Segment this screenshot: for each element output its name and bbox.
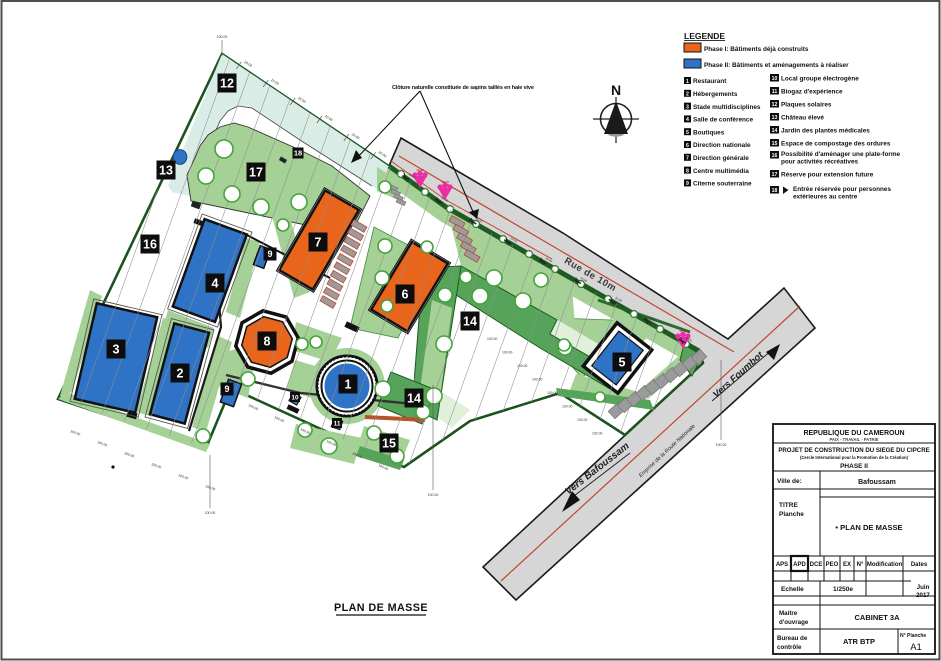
- svg-text:12: 12: [220, 77, 234, 91]
- svg-text:PEO: PEO: [826, 562, 839, 568]
- svg-text:Château élevé: Château élevé: [781, 114, 824, 121]
- svg-text:2017: 2017: [916, 592, 930, 599]
- svg-text:100.00: 100.00: [562, 405, 572, 409]
- svg-text:100.00: 100.00: [428, 493, 439, 497]
- svg-text:10.00: 10.00: [416, 168, 424, 172]
- svg-text:14: 14: [407, 392, 421, 406]
- svg-text:11: 11: [334, 420, 341, 427]
- svg-text:2: 2: [177, 367, 184, 381]
- svg-text:N°: N°: [857, 562, 864, 568]
- svg-text:• PLAN DE MASSE: • PLAN DE MASSE: [835, 523, 902, 532]
- svg-text:Citerne souterraine: Citerne souterraine: [693, 181, 752, 188]
- svg-text:extérieures au centre: extérieures au centre: [793, 194, 858, 201]
- svg-text:A1: A1: [910, 642, 922, 653]
- svg-text:Hébergements: Hébergements: [693, 91, 738, 98]
- svg-text:16: 16: [772, 153, 778, 159]
- svg-text:ATR BTP: ATR BTP: [843, 637, 875, 646]
- svg-text:11: 11: [772, 89, 778, 95]
- svg-text:Direction générale: Direction générale: [693, 155, 749, 162]
- svg-text:Jardin des plantes médicales: Jardin des plantes médicales: [781, 127, 870, 134]
- svg-text:18: 18: [772, 188, 778, 194]
- svg-text:4: 4: [686, 117, 689, 123]
- svg-text:100.00: 100.00: [716, 443, 727, 447]
- svg-text:Centre multimédia: Centre multimédia: [693, 168, 749, 175]
- svg-text:100.00: 100.00: [487, 337, 497, 341]
- svg-text:100.00: 100.00: [577, 418, 587, 422]
- svg-text:7: 7: [315, 236, 322, 250]
- svg-text:10.00: 10.00: [679, 329, 687, 333]
- svg-text:100.00: 100.00: [517, 364, 527, 368]
- svg-text:Plaques solaires: Plaques solaires: [781, 101, 832, 108]
- svg-text:Modification: Modification: [867, 562, 903, 568]
- svg-text:8: 8: [264, 335, 271, 349]
- svg-text:Bafoussam: Bafoussam: [858, 479, 896, 486]
- svg-text:3: 3: [686, 104, 689, 110]
- svg-text:15: 15: [772, 141, 778, 147]
- svg-text:100.00: 100.00: [217, 35, 228, 39]
- svg-text:100.00: 100.00: [532, 378, 542, 382]
- svg-text:Réserve pour extension future: Réserve pour extension future: [781, 171, 874, 178]
- svg-text:17: 17: [772, 172, 778, 178]
- svg-text:3: 3: [113, 343, 120, 357]
- svg-text:Possibilité d'aménager une pla: Possibilité d'aménager une plate-forme: [781, 151, 901, 158]
- svg-text:100.00: 100.00: [547, 391, 557, 395]
- svg-text:REPUBLIQUE DU CAMEROUN: REPUBLIQUE DU CAMEROUN: [803, 430, 904, 437]
- svg-text:TITRE: TITRE: [779, 502, 798, 509]
- svg-text:13: 13: [159, 164, 173, 178]
- svg-text:d'ouvrage: d'ouvrage: [779, 619, 809, 626]
- svg-text:14: 14: [463, 315, 477, 329]
- svg-text:Planche: Planche: [779, 511, 804, 518]
- svg-text:17: 17: [249, 166, 263, 180]
- svg-text:Maitre: Maitre: [779, 610, 798, 617]
- svg-text:Local groupe électrogène: Local groupe électrogène: [781, 75, 859, 82]
- svg-text:Salle de conférence: Salle de conférence: [693, 117, 753, 124]
- svg-text:6: 6: [402, 288, 409, 302]
- svg-text:Boutiques: Boutiques: [693, 129, 725, 136]
- svg-text:1: 1: [686, 79, 689, 85]
- svg-text:N° Planche: N° Planche: [900, 633, 926, 639]
- svg-text:10: 10: [772, 76, 778, 82]
- svg-text:10.00: 10.00: [441, 180, 449, 184]
- svg-text:Espace de compostage des ordur: Espace de compostage des ordures: [781, 140, 891, 147]
- svg-text:pour activités récréatives: pour activités récréatives: [781, 159, 859, 166]
- svg-text:Ville de:: Ville de:: [777, 478, 802, 485]
- svg-text:Echelle: Echelle: [781, 586, 804, 593]
- svg-text:9: 9: [267, 249, 272, 259]
- svg-text:5: 5: [686, 130, 689, 136]
- svg-text:9: 9: [224, 384, 229, 394]
- svg-text:CABINET 3A: CABINET 3A: [854, 613, 900, 622]
- svg-text:1: 1: [345, 378, 352, 392]
- svg-text:100.00: 100.00: [592, 432, 602, 436]
- svg-text:2: 2: [686, 92, 689, 98]
- svg-text:13: 13: [772, 115, 778, 121]
- svg-text:12: 12: [772, 102, 778, 108]
- svg-text:Juin: Juin: [917, 584, 930, 591]
- svg-text:Phase I: Bâtiments déjà constr: Phase I: Bâtiments déjà construits: [704, 46, 809, 53]
- svg-text:Restaurant: Restaurant: [693, 78, 727, 85]
- svg-text:Clôture naturelle constituée d: Clôture naturelle constituée de sapins t…: [392, 85, 534, 91]
- svg-text:PAIX - TRAVAIL - PATRIE: PAIX - TRAVAIL - PATRIE: [829, 437, 878, 442]
- svg-text:EX: EX: [843, 562, 851, 568]
- svg-text:PROJET DE CONSTRUCTION DU SIEG: PROJET DE CONSTRUCTION DU SIEGE DU CIPCR…: [778, 447, 929, 454]
- svg-text:Direction nationale: Direction nationale: [693, 142, 751, 149]
- svg-text:8: 8: [686, 168, 689, 174]
- svg-text:APS: APS: [776, 562, 788, 568]
- svg-text:contrôle: contrôle: [777, 644, 802, 651]
- svg-text:18: 18: [294, 149, 302, 158]
- svg-text:DCE: DCE: [810, 562, 823, 568]
- svg-text:5: 5: [619, 356, 626, 370]
- svg-text:PLAN DE MASSE: PLAN DE MASSE: [334, 602, 428, 614]
- svg-text:10: 10: [291, 394, 299, 401]
- svg-text:14: 14: [772, 128, 778, 134]
- svg-text:Bureau de: Bureau de: [777, 635, 808, 642]
- svg-text:(Cercle International pour la: (Cercle International pour la Promotion …: [800, 455, 909, 460]
- svg-text:4: 4: [212, 277, 219, 291]
- svg-text:100.00: 100.00: [205, 511, 216, 515]
- svg-text:Phase II: Bâtiments et aménage: Phase II: Bâtiments et aménagements à ré…: [704, 62, 849, 69]
- svg-text:Entrée réservée pour personnes: Entrée réservée pour personnes: [793, 186, 891, 193]
- svg-text:Biogaz d'expérience: Biogaz d'expérience: [781, 88, 843, 95]
- svg-text:1/250e: 1/250e: [833, 586, 853, 593]
- svg-text:PHASE II: PHASE II: [840, 463, 868, 470]
- svg-text:16: 16: [143, 238, 157, 252]
- svg-text:9: 9: [686, 181, 689, 187]
- svg-text:15: 15: [382, 437, 396, 451]
- svg-text:100.00: 100.00: [502, 351, 512, 355]
- svg-text:Dates: Dates: [911, 562, 928, 568]
- svg-text:6: 6: [686, 143, 689, 149]
- svg-text:Stade multidisciplines: Stade multidisciplines: [693, 104, 761, 111]
- svg-text:LEGENDE: LEGENDE: [684, 31, 725, 41]
- svg-text:N: N: [611, 82, 621, 98]
- svg-text:7: 7: [686, 156, 689, 162]
- svg-text:APD: APD: [793, 562, 806, 568]
